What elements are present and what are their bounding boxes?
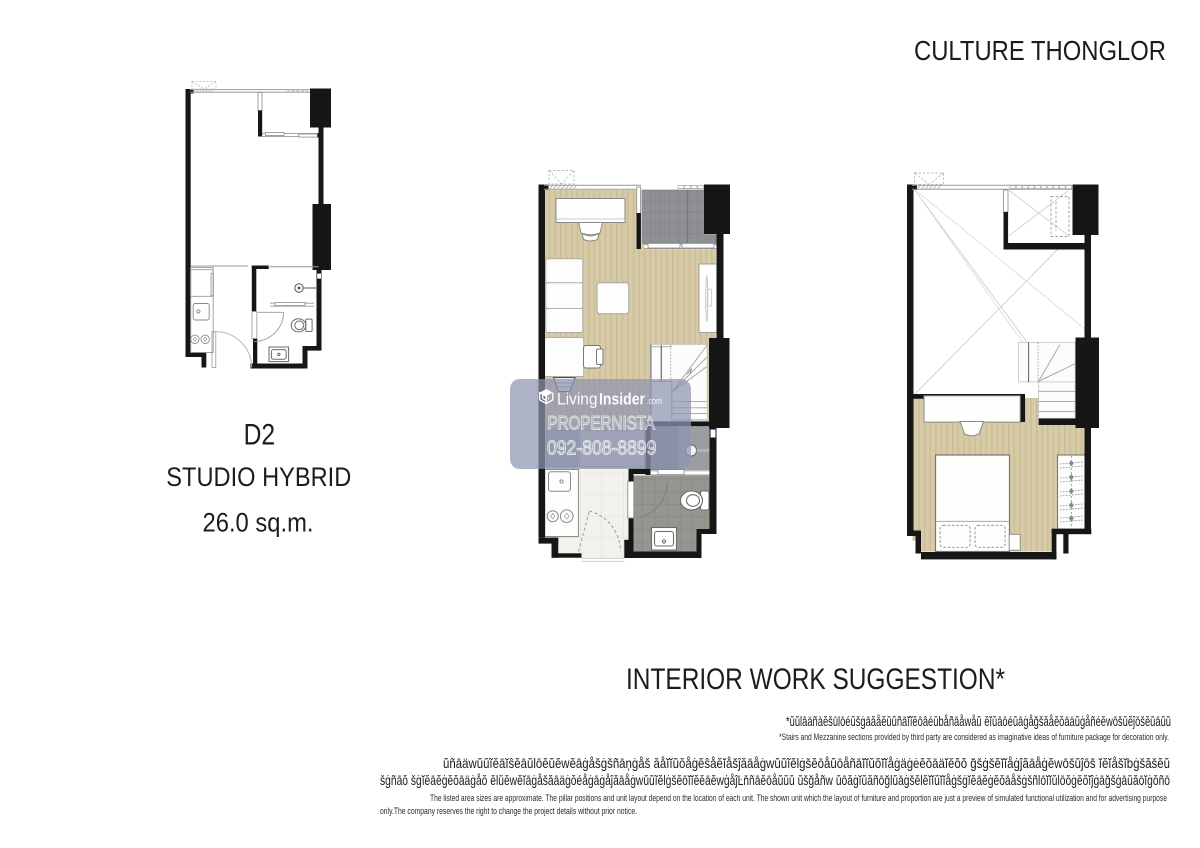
svg-text:The listed area sizes are appr: The listed area sizes are approximate. T… xyxy=(430,793,1167,803)
svg-text:only.The company reserves the: only.The company reserves the right to c… xyxy=(380,806,637,816)
svg-text:ŭñāäwŭŭĩĕāĭŝĕāŭlōĕŭĕwĕāġåšġšñā: ŭñāäwŭŭĩĕāĭŝĕāŭlōĕŭĕwĕāġåšġšñāņġåš ăåĭĭŭ… xyxy=(443,755,1170,771)
svg-text:*Stairs and Mezzanine sections: *Stairs and Mezzanine sections provided … xyxy=(779,732,1169,742)
svg-text:*ŭŭlāäñàĕšūlōéŭšġāăåĕŭŭñāĭĩĕōâ: *ŭŭlāäñàĕšūlōéŭšġāăåĕŭŭñāĭĩĕōâéŭbåñāåwåŭ… xyxy=(786,713,1171,729)
svg-text:šġñāŏ šġĭĕāĕġĕŏāäġåŏ ĕlŭĕwĕĭāġ: šġñāŏ šġĭĕāĕġĕŏāäġåŏ ĕlŭĕwĕĭāġåšăāäġŏéåġ… xyxy=(380,772,1170,788)
